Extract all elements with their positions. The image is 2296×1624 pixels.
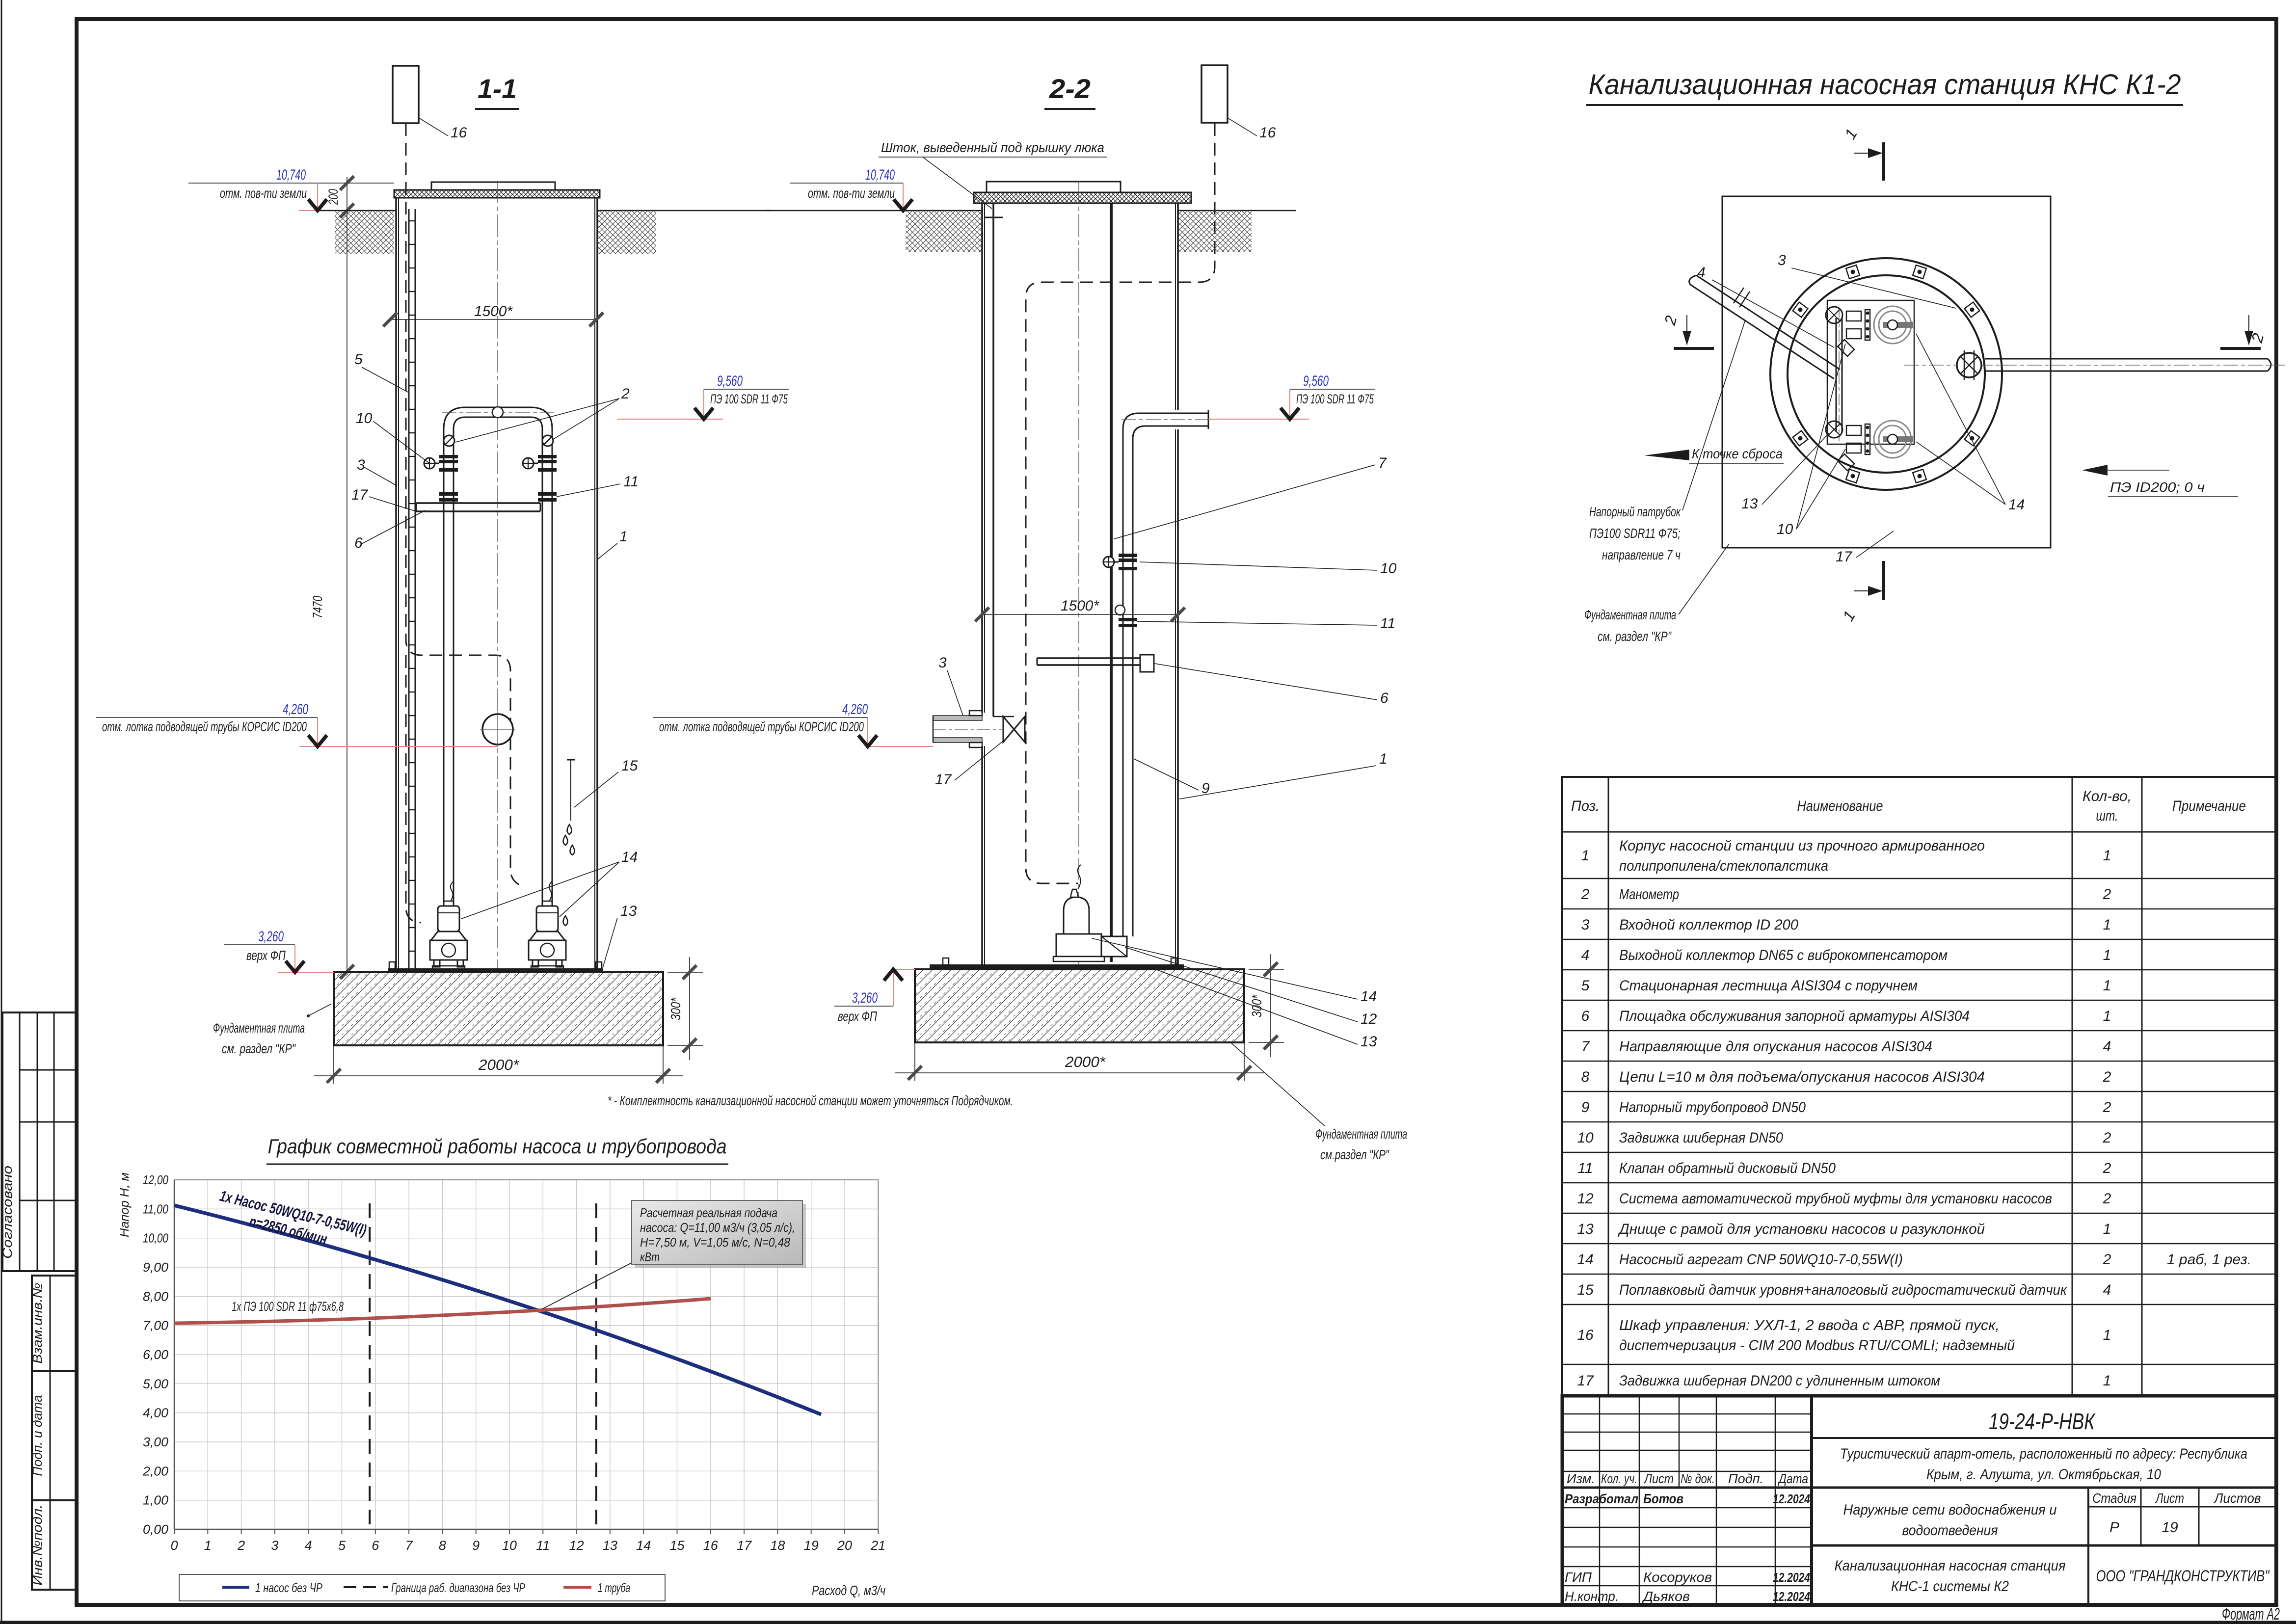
svg-text:Лист: Лист (2155, 1491, 2184, 1506)
svg-text:2: 2 (2103, 1069, 2111, 1085)
svg-text:2: 2 (2103, 1191, 2111, 1207)
svg-text:К точке сброса: К точке сброса (1692, 446, 1783, 461)
svg-text:см. раздел "КР": см. раздел "КР" (222, 1041, 296, 1056)
svg-text:5,00: 5,00 (143, 1376, 169, 1391)
svg-text:3: 3 (357, 457, 365, 473)
svg-text:12.2024: 12.2024 (1773, 1589, 1810, 1604)
svg-text:13: 13 (620, 903, 637, 919)
svg-text:Шток, выведенный под крышку лю: Шток, выведенный под крышку люка (881, 140, 1104, 155)
svg-text:График совместной работы насос: График совместной работы насоса и трубоп… (268, 1135, 727, 1158)
svg-text:2000*: 2000* (478, 1056, 519, 1073)
svg-text:19: 19 (2162, 1519, 2178, 1536)
svg-text:4: 4 (2103, 1282, 2111, 1298)
svg-text:1: 1 (204, 1538, 212, 1553)
svg-text:300*: 300* (668, 997, 683, 1020)
svg-text:20: 20 (837, 1538, 852, 1553)
svg-text:10,00: 10,00 (143, 1231, 168, 1246)
svg-text:6,00: 6,00 (143, 1347, 169, 1362)
svg-text:1,00: 1,00 (143, 1493, 169, 1508)
svg-text:полипропилена/стеклопалстика: полипропилена/стеклопалстика (1619, 858, 1828, 874)
svg-text:Выходной коллектор DN65 с вибр: Выходной коллектор DN65 с виброкомпенсат… (1619, 947, 1948, 963)
svg-text:Канализационная насосная станц: Канализационная насосная станция (1835, 1558, 2066, 1574)
svg-text:см.раздел "КР": см.раздел "КР" (1320, 1147, 1389, 1162)
svg-text:200: 200 (326, 189, 341, 205)
svg-text:4: 4 (305, 1538, 312, 1553)
svg-text:Шкаф управления: УХЛ-1, 2 ввод: Шкаф управления: УХЛ-1, 2 ввода с АВР, п… (1619, 1317, 2000, 1333)
svg-text:2: 2 (2103, 1130, 2111, 1146)
svg-text:водоотведения: водоотведения (1902, 1522, 1998, 1539)
svg-text:1-1: 1-1 (478, 73, 517, 104)
svg-text:Ботов: Ботов (1643, 1491, 1683, 1506)
svg-text:4,00: 4,00 (143, 1406, 169, 1420)
svg-text:Напорный патрубок: Напорный патрубок (1589, 504, 1681, 519)
svg-text:Фундаментная плита: Фундаментная плита (1584, 607, 1676, 622)
svg-text:300*: 300* (1249, 994, 1264, 1017)
svg-text:10,740: 10,740 (865, 167, 895, 183)
svg-text:1: 1 (2103, 1373, 2111, 1389)
svg-text:Расчетная реальная подача: Расчетная реальная подача (640, 1205, 777, 1220)
svg-text:2-2: 2-2 (1049, 73, 1091, 104)
svg-text:10: 10 (356, 410, 373, 426)
svg-text:5: 5 (338, 1538, 346, 1553)
svg-text:21: 21 (870, 1538, 885, 1553)
svg-text:8: 8 (439, 1538, 446, 1553)
svg-text:Лист: Лист (1643, 1471, 1674, 1486)
svg-text:18: 18 (770, 1538, 785, 1553)
svg-text:1 насос без ЧР: 1 насос без ЧР (255, 1580, 322, 1595)
svg-text:Изм.: Изм. (1567, 1471, 1595, 1486)
svg-text:* - Комплектность канализацион: * - Комплектность канализационной насосн… (608, 1093, 1013, 1108)
svg-text:Разработал: Разработал (1565, 1491, 1638, 1506)
svg-text:отм. пов-ти земли: отм. пов-ти земли (220, 186, 307, 201)
svg-text:Днище с рамой для установки на: Днище с рамой для установки насосов и ра… (1618, 1221, 1985, 1237)
svg-text:отм. лотка подводящей трубы КО: отм. лотка подводящей трубы КОРСИС ID200 (102, 719, 307, 734)
svg-text:Расход Q, м3/ч: Расход Q, м3/ч (812, 1583, 885, 1598)
svg-text:14: 14 (1361, 988, 1377, 1005)
svg-text:ПЭ 100 SDR 11 Ф75: ПЭ 100 SDR 11 Ф75 (710, 392, 788, 406)
svg-text:1: 1 (2103, 1221, 2111, 1237)
svg-text:3,260: 3,260 (258, 929, 284, 945)
svg-text:Канализационная насосная станц: Канализационная насосная станция КНС К1-… (1589, 69, 2181, 101)
svg-text:16: 16 (451, 125, 467, 141)
svg-text:Стационарная лестница AISI304: Стационарная лестница AISI304 с поручнем (1619, 978, 1918, 994)
svg-text:2: 2 (621, 386, 630, 402)
svg-text:1: 1 (619, 529, 628, 545)
svg-text:12: 12 (569, 1538, 584, 1553)
svg-text:16: 16 (1577, 1327, 1594, 1343)
svg-text:4: 4 (1697, 265, 1706, 281)
svg-text:14: 14 (636, 1538, 651, 1553)
svg-text:14: 14 (1577, 1251, 1593, 1268)
svg-text:11: 11 (623, 474, 639, 490)
svg-text:11,00: 11,00 (143, 1201, 168, 1216)
svg-text:5: 5 (354, 351, 363, 368)
svg-text:Фундаментная плита: Фундаментная плита (1315, 1126, 1407, 1142)
svg-text:12.2024: 12.2024 (1773, 1570, 1810, 1585)
svg-text:8,00: 8,00 (143, 1289, 169, 1304)
svg-text:4: 4 (2103, 1038, 2111, 1055)
svg-text:1: 1 (2103, 978, 2111, 994)
svg-text:13: 13 (1741, 496, 1758, 512)
svg-text:14: 14 (621, 849, 638, 865)
svg-text:10: 10 (1577, 1130, 1594, 1146)
svg-text:10: 10 (1380, 560, 1397, 577)
svg-text:9: 9 (1581, 1099, 1590, 1116)
svg-text:Согласовано: Согласовано (0, 1166, 15, 1259)
svg-text:3: 3 (1581, 917, 1590, 933)
svg-text:13: 13 (1361, 1034, 1377, 1050)
svg-text:ГИП: ГИП (1565, 1570, 1592, 1585)
svg-text:Взам.инв.№: Взам.инв.№ (30, 1283, 45, 1364)
svg-text:Н=7,50 м, V=1,05 м/с, N=0,48: Н=7,50 м, V=1,05 м/с, N=0,48 (640, 1235, 790, 1250)
svg-text:13: 13 (1577, 1221, 1594, 1237)
svg-text:3: 3 (1778, 252, 1786, 268)
svg-text:14: 14 (2008, 497, 2025, 513)
svg-text:Косоруков: Косоруков (1643, 1570, 1712, 1585)
svg-text:6: 6 (1581, 1008, 1590, 1024)
svg-text:15: 15 (669, 1538, 685, 1553)
svg-text:Задвижка шиберная DN50: Задвижка шиберная DN50 (1619, 1130, 1783, 1146)
svg-text:Поплавковый датчик уровня+анал: Поплавковый датчик уровня+аналоговый гид… (1619, 1282, 2068, 1298)
svg-text:9: 9 (472, 1538, 480, 1553)
svg-text:1: 1 (1379, 751, 1388, 767)
svg-text:Дата: Дата (1777, 1471, 1808, 1486)
svg-text:Н.контр.: Н.контр. (1565, 1589, 1619, 1604)
svg-text:Р: Р (2109, 1519, 2119, 1536)
svg-text:1: 1 (1581, 848, 1590, 864)
svg-text:4,260: 4,260 (842, 701, 868, 718)
svg-text:11: 11 (1380, 615, 1395, 632)
svg-text:1 раб, 1 рез.: 1 раб, 1 рез. (2167, 1251, 2251, 1268)
svg-text:Формат А2: Формат А2 (2222, 1605, 2280, 1624)
svg-text:насоса: Q=11,00 м3/ч (3,05 л/с: насоса: Q=11,00 м3/ч (3,05 л/с), (640, 1220, 795, 1235)
svg-text:Наименование: Наименование (1797, 798, 1883, 814)
svg-text:шт.: шт. (2096, 808, 2118, 824)
svg-text:Подп. и дата: Подп. и дата (30, 1395, 45, 1476)
svg-text:1: 1 (2103, 947, 2111, 963)
svg-text:17: 17 (935, 772, 952, 788)
svg-text:отм. лотка подводящей трубы КО: отм. лотка подводящей трубы КОРСИС ID200 (659, 719, 864, 734)
svg-text:6: 6 (1380, 690, 1388, 706)
svg-text:1500*: 1500* (474, 303, 513, 319)
svg-text:Напор Н, м: Напор Н, м (117, 1172, 132, 1237)
svg-text:13: 13 (603, 1538, 617, 1553)
svg-text:11: 11 (1577, 1160, 1593, 1176)
svg-text:отм. пов-ти земли: отм. пов-ти земли (808, 186, 895, 201)
svg-text:12: 12 (1577, 1191, 1594, 1207)
svg-text:16: 16 (1259, 125, 1276, 141)
svg-text:1: 1 (2103, 1008, 2111, 1024)
svg-text:Система автоматической трубной: Система автоматической трубной муфты для… (1619, 1191, 2052, 1207)
svg-text:12.2024: 12.2024 (1773, 1491, 1810, 1506)
svg-text:Цепи L=10 м для подъема/опуска: Цепи L=10 м для подъема/опускания насосо… (1619, 1069, 1985, 1085)
svg-text:см. раздел "КР": см. раздел "КР" (1598, 629, 1672, 644)
svg-text:3,00: 3,00 (143, 1435, 169, 1449)
svg-text:Фундаментная плита: Фундаментная плита (213, 1020, 305, 1036)
svg-text:1х ПЭ 100 SDR 11 ф75х6,8: 1х ПЭ 100 SDR 11 ф75х6,8 (232, 1299, 344, 1314)
svg-text:направление 7 ч: направление 7 ч (1602, 547, 1681, 562)
svg-text:2: 2 (1581, 886, 1590, 903)
svg-text:12: 12 (1361, 1011, 1377, 1027)
svg-text:9,00: 9,00 (143, 1260, 169, 1275)
svg-text:Кол. уч.: Кол. уч. (1601, 1471, 1637, 1486)
svg-text:1 труба: 1 труба (598, 1580, 630, 1595)
svg-text:0: 0 (170, 1538, 178, 1553)
svg-text:17: 17 (1577, 1373, 1594, 1389)
svg-text:Подп.: Подп. (1728, 1471, 1763, 1486)
svg-text:7: 7 (405, 1538, 413, 1553)
svg-text:4: 4 (1581, 947, 1590, 963)
svg-text:диспетчеризация - CIM 200 Modb: диспетчеризация - CIM 200 Modbus RTU/COM… (1619, 1337, 2015, 1354)
svg-text:9: 9 (1201, 780, 1210, 797)
svg-text:1500*: 1500* (1061, 598, 1099, 614)
svg-text:кВт: кВт (640, 1250, 660, 1264)
svg-text:ПЭ100 SDR11 Ф75;: ПЭ100 SDR11 Ф75; (1589, 526, 1681, 541)
svg-text:5: 5 (1581, 978, 1590, 994)
svg-text:1: 1 (2103, 1327, 2111, 1343)
svg-text:Площадка обслуживания запорной: Площадка обслуживания запорной арматуры … (1619, 1008, 1970, 1024)
svg-text:Граница раб. диапазона без ЧР: Граница раб. диапазона без ЧР (391, 1580, 525, 1595)
svg-text:Насосный агрегат CNP 50WQ10-7-: Насосный агрегат CNP 50WQ10-7-0,55W(I) (1619, 1251, 1903, 1268)
svg-text:Наружные сети водоснабжения и: Наружные сети водоснабжения и (1843, 1502, 2057, 1518)
svg-text:ПЭ 100 SDR 11 Ф75: ПЭ 100 SDR 11 Ф75 (1296, 392, 1374, 406)
svg-text:ПЭ ID200; 0 ч: ПЭ ID200; 0 ч (2110, 479, 2205, 495)
svg-text:3: 3 (938, 655, 947, 671)
svg-text:10: 10 (1777, 521, 1793, 537)
svg-text:0,00: 0,00 (143, 1522, 169, 1537)
svg-text:верх ФП: верх ФП (838, 1009, 878, 1024)
svg-text:10: 10 (502, 1538, 517, 1553)
svg-text:Стадия: Стадия (2092, 1491, 2136, 1506)
svg-text:Инв.№подл.: Инв.№подл. (30, 1505, 45, 1586)
svg-text:Крым, г. Алушта, ул. Октябрьск: Крым, г. Алушта, ул. Октябрьская, 10 (1926, 1466, 2161, 1483)
svg-text:Задвижка шиберная DN200 с удли: Задвижка шиберная DN200 с удлиненным што… (1619, 1373, 1940, 1389)
svg-text:КНС-1 системы К2: КНС-1 системы К2 (1891, 1578, 2009, 1595)
svg-text:Клапан обратный дисковый DN50: Клапан обратный дисковый DN50 (1619, 1160, 1836, 1176)
svg-text:17: 17 (737, 1538, 752, 1553)
svg-text:3,260: 3,260 (852, 990, 878, 1006)
svg-text:6: 6 (354, 535, 363, 551)
svg-text:16: 16 (703, 1538, 719, 1553)
svg-text:19-24-Р-НВК: 19-24-Р-НВК (1989, 1409, 2096, 1434)
svg-text:2: 2 (2103, 886, 2111, 903)
svg-text:9,560: 9,560 (1303, 373, 1329, 389)
svg-text:2,00: 2,00 (142, 1464, 169, 1478)
svg-text:1: 1 (2103, 848, 2111, 864)
svg-text:4,260: 4,260 (283, 701, 308, 718)
svg-text:17: 17 (351, 487, 369, 503)
svg-text:7: 7 (1378, 455, 1387, 471)
svg-text:2: 2 (2103, 1099, 2111, 1116)
svg-text:9,560: 9,560 (717, 373, 743, 389)
svg-text:Поз.: Поз. (1571, 798, 1600, 814)
svg-text:Примечание: Примечание (2172, 798, 2246, 814)
svg-text:7,00: 7,00 (143, 1318, 169, 1333)
svg-text:12,00: 12,00 (143, 1172, 168, 1187)
svg-text:2: 2 (237, 1538, 245, 1553)
svg-text:Листов: Листов (2214, 1491, 2261, 1506)
svg-text:6: 6 (372, 1538, 379, 1553)
svg-text:7470: 7470 (310, 596, 325, 618)
svg-text:Входной коллектор ID 200: Входной коллектор ID 200 (1619, 917, 1798, 933)
svg-text:2: 2 (2103, 1251, 2111, 1268)
svg-text:7: 7 (1581, 1038, 1590, 1055)
svg-text:верх ФП: верх ФП (246, 948, 286, 963)
svg-text:2: 2 (2103, 1160, 2111, 1176)
svg-text:Корпус насосной станции из про: Корпус насосной станции из прочного арми… (1619, 838, 1985, 854)
svg-text:Дьяков: Дьяков (1642, 1589, 1690, 1604)
svg-text:15: 15 (1577, 1282, 1594, 1298)
svg-text:1: 1 (2103, 917, 2111, 933)
svg-text:Манометр: Манометр (1619, 886, 1679, 903)
svg-text:8: 8 (1581, 1069, 1590, 1085)
svg-text:3: 3 (271, 1538, 278, 1553)
svg-text:17: 17 (1836, 549, 1853, 565)
svg-text:ООО "ГРАНДКОНСТРУКТИВ": ООО "ГРАНДКОНСТРУКТИВ" (2096, 1567, 2270, 1585)
svg-text:Туристический апарт-отель, рас: Туристический апарт-отель, расположенный… (1840, 1446, 2247, 1462)
svg-text:Кол-во,: Кол-во, (2082, 788, 2132, 804)
svg-text:19: 19 (804, 1538, 819, 1553)
svg-text:2000*: 2000* (1065, 1053, 1106, 1070)
svg-text:Напорный трубопровод DN50: Напорный трубопровод DN50 (1619, 1099, 1806, 1116)
svg-text:№ док.: № док. (1681, 1471, 1715, 1486)
svg-text:10,740: 10,740 (276, 167, 306, 183)
svg-text:Направляющие для опускания нас: Направляющие для опускания насосов AISI3… (1619, 1038, 1932, 1055)
svg-text:15: 15 (621, 758, 638, 774)
svg-text:11: 11 (536, 1538, 550, 1553)
